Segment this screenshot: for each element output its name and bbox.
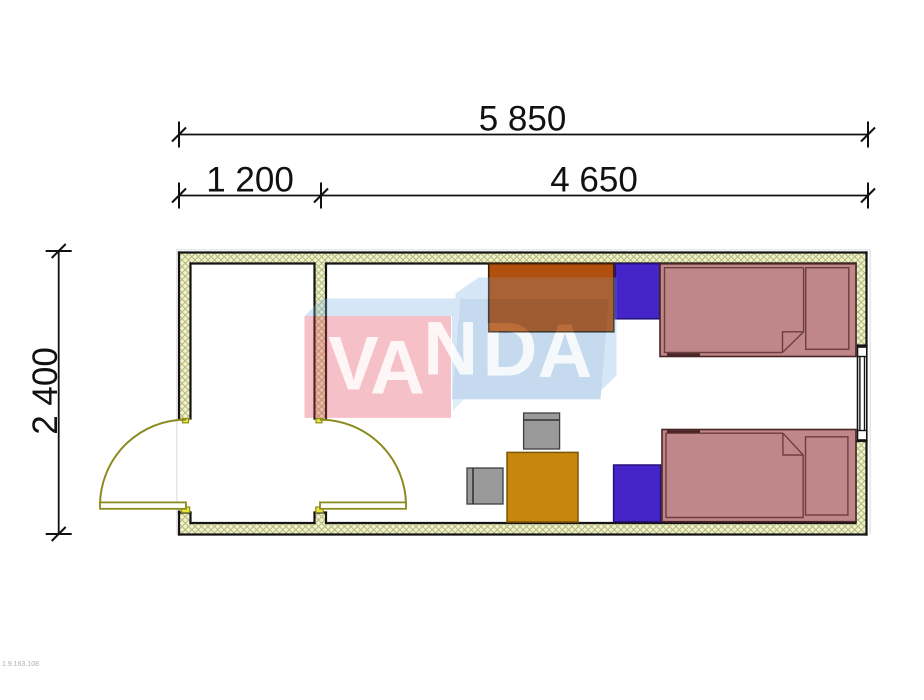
svg-text:4 650: 4 650 — [550, 161, 638, 200]
svg-text:1.9.163.108: 1.9.163.108 — [2, 661, 39, 668]
svg-text:2 400: 2 400 — [26, 347, 65, 435]
svg-text:1 200: 1 200 — [206, 161, 294, 200]
svg-text:5 850: 5 850 — [479, 100, 567, 139]
